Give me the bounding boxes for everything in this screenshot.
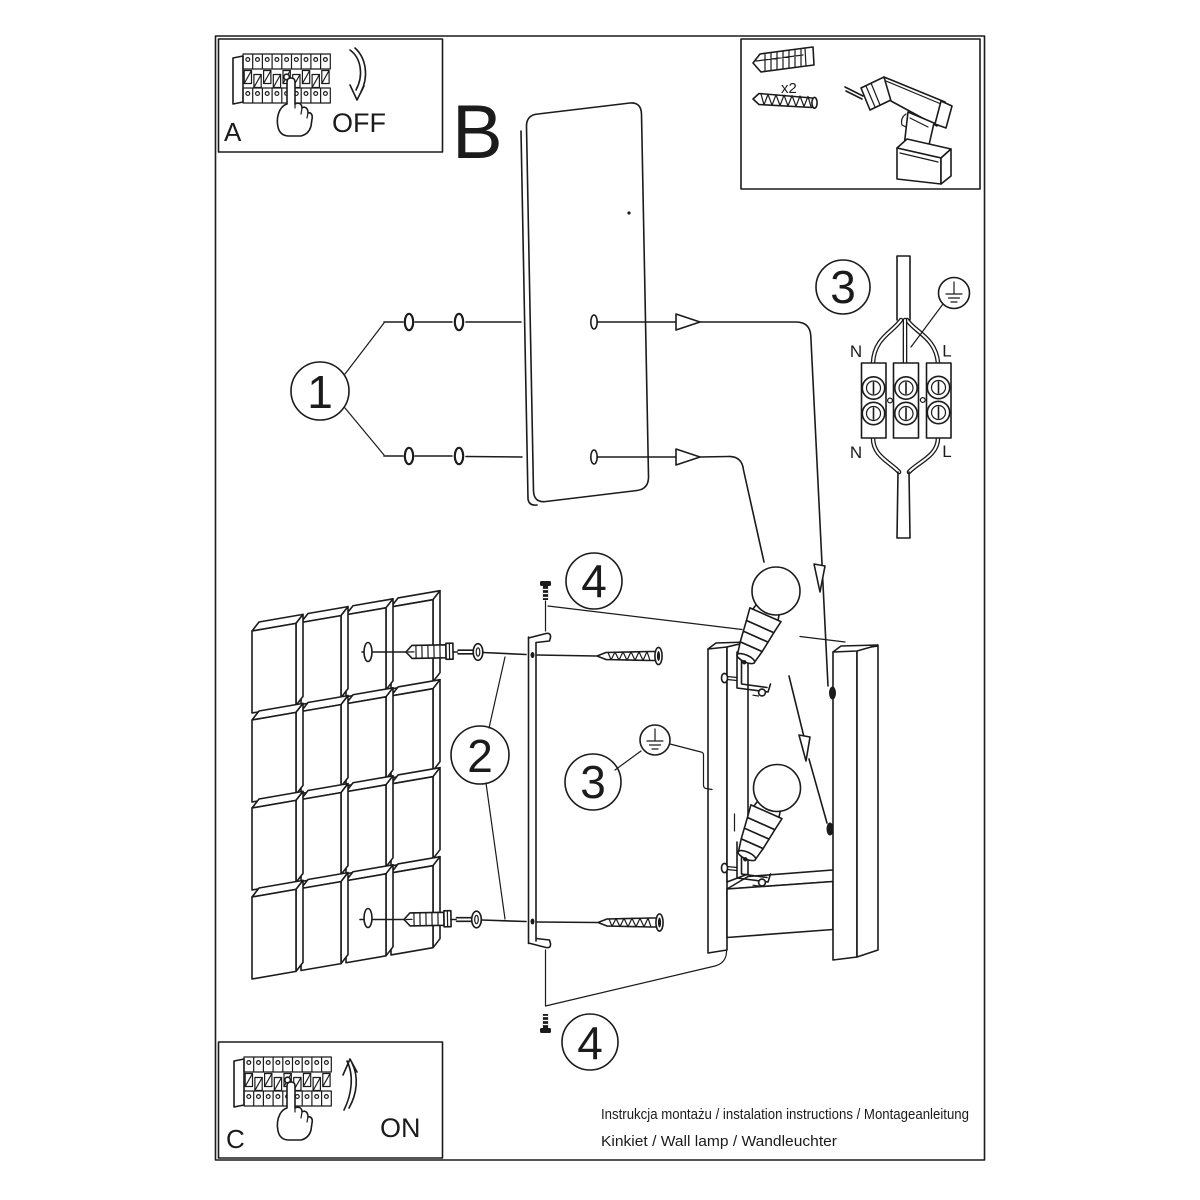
wall-tile <box>386 599 393 690</box>
wall-tile <box>296 703 303 794</box>
wall-tile <box>386 865 393 956</box>
bracket-hole <box>531 919 535 925</box>
instruction-sheet: A OFF B x2 <box>0 0 1200 1200</box>
wall-tile <box>301 882 341 971</box>
step-a-off-label: OFF <box>332 108 386 138</box>
cover-plate <box>526 103 648 502</box>
footer-line-1: Instrukcja montażu / instalation instruc… <box>601 1106 969 1123</box>
lamp-right-post-front <box>833 649 857 960</box>
grommet-icon <box>455 314 463 330</box>
step-c-power-on: C ON <box>219 1042 443 1158</box>
bracket-hole <box>531 652 535 658</box>
callout-2-number: 2 <box>467 730 493 782</box>
wall-tile <box>296 791 303 882</box>
wall-anchor-icon <box>404 911 451 928</box>
wall-tile <box>341 873 348 964</box>
wall-tile <box>296 614 303 705</box>
wall-tile <box>346 785 386 874</box>
wall-tile <box>433 680 440 771</box>
wall-tile <box>301 705 341 794</box>
lamp-left-post-front <box>708 646 727 953</box>
step-c-on-label: ON <box>380 1113 421 1143</box>
wall-tile <box>252 800 296 890</box>
callout-3-number: 3 <box>830 261 856 313</box>
tools-box: x2 <box>741 39 980 189</box>
wall-tile <box>252 623 296 713</box>
lamp-right-post-side <box>857 646 878 957</box>
grommet-icon <box>405 314 413 330</box>
step-c-letter: C <box>226 1124 245 1154</box>
callout-4-top-number: 4 <box>581 555 607 607</box>
wall-tile <box>341 696 348 787</box>
callout-1-number: 1 <box>307 366 333 418</box>
wall-tile <box>386 688 393 779</box>
wire-label-l-bottom: L <box>942 442 951 461</box>
wire-label-n-bottom: N <box>850 443 862 462</box>
wall-tile <box>341 784 348 875</box>
step-a-letter: A <box>224 117 242 147</box>
wire-label-l-top: L <box>942 342 951 361</box>
wall-tile <box>296 880 303 971</box>
wall-tile <box>433 591 440 682</box>
plate-mark-dot <box>627 211 630 214</box>
anchor-count-label: x2 <box>781 80 797 97</box>
frame-hole-top <box>829 687 836 700</box>
wall-tile <box>386 776 393 867</box>
footer-line-2: Kinkiet / Wall lamp / Wandleuchter <box>601 1133 837 1150</box>
wall-tile <box>252 889 296 979</box>
wall-hole-bottom <box>364 909 372 928</box>
wall-anchor-icon <box>406 643 453 660</box>
wall-tile <box>301 793 341 882</box>
callout-3-mid-number: 3 <box>580 756 606 808</box>
wall-tile <box>433 768 440 859</box>
wall-tile <box>391 600 433 689</box>
grommet-icon <box>455 448 463 464</box>
bulb-globe <box>752 567 800 615</box>
wall-tile <box>433 857 440 948</box>
step-b-letter: B <box>452 90 503 175</box>
wall-hole-top <box>364 643 372 662</box>
terminal-block <box>862 363 952 438</box>
wall-tile <box>391 866 433 955</box>
wall-tile <box>346 697 386 786</box>
wire-label-n-top: N <box>850 342 862 361</box>
wall-tile <box>391 689 433 778</box>
wall-tile <box>301 616 341 705</box>
frame-hole-bottom <box>827 823 834 836</box>
bulb-globe <box>754 765 801 812</box>
grommet-icon <box>405 448 413 464</box>
wall-tile <box>341 607 348 698</box>
lamp-crossbar-front <box>727 882 833 938</box>
step-a-power-off: A OFF <box>219 39 443 152</box>
wall-tile <box>252 712 296 802</box>
callout-4-bottom-number: 4 <box>577 1017 603 1069</box>
wall-tile <box>391 777 433 866</box>
